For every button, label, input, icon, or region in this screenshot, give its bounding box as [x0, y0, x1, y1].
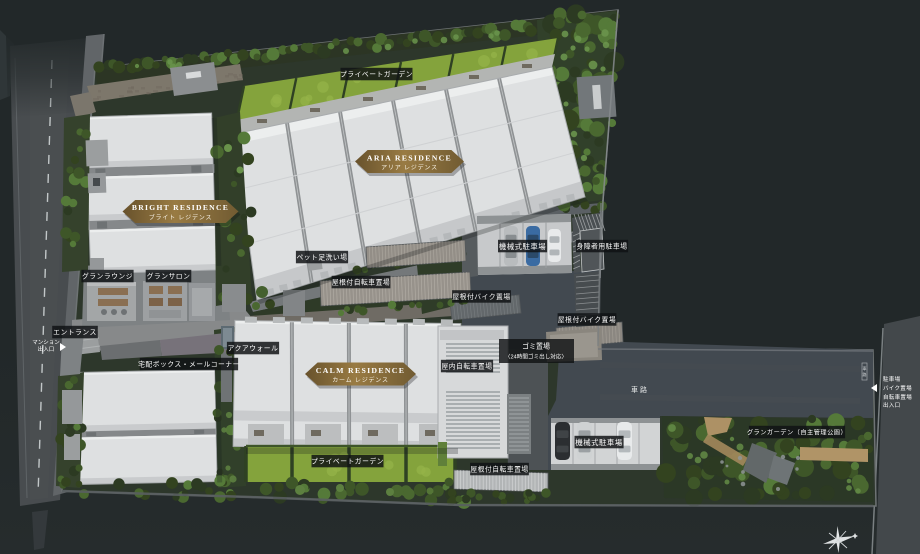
svg-text:CALM RESIDENCE: CALM RESIDENCE — [316, 366, 405, 375]
svg-text:プライベートガーデン: プライベートガーデン — [340, 70, 413, 79]
svg-text:路: 路 — [863, 371, 867, 377]
svg-text:車: 車 — [863, 365, 867, 371]
svg-text:ゴミ置場: ゴミ置場 — [522, 342, 550, 351]
svg-text:ペット足洗い場: ペット足洗い場 — [296, 253, 347, 262]
svg-text:グランサロン: グランサロン — [147, 272, 191, 281]
svg-text:自転車置場: 自転車置場 — [883, 393, 912, 401]
svg-text:出入口: 出入口 — [38, 345, 55, 353]
svg-text:屋根付バイク置場: 屋根付バイク置場 — [452, 292, 510, 301]
svg-text:屋根付バイク置場: 屋根付バイク置場 — [558, 315, 616, 324]
svg-text:グランガーデン（自主管理公園）: グランガーデン（自主管理公園） — [747, 428, 847, 436]
svg-text:グランラウンジ: グランラウンジ — [82, 272, 133, 281]
svg-text:ブライト レジデンス: ブライト レジデンス — [149, 214, 213, 222]
svg-text:BRIGHT RESIDENCE: BRIGHT RESIDENCE — [132, 203, 229, 212]
svg-text:身障者用駐車場: 身障者用駐車場 — [576, 242, 627, 251]
svg-text:エントランス: エントランス — [53, 329, 97, 337]
svg-text:ARIA RESIDENCE: ARIA RESIDENCE — [367, 153, 452, 162]
svg-text:駐車場: 駐車場 — [883, 375, 901, 383]
svg-text:屋根付自転車置場: 屋根付自転車置場 — [470, 465, 528, 474]
svg-text:〈24時間ゴミ出し対応〉: 〈24時間ゴミ出し対応〉 — [505, 353, 567, 361]
svg-text:屋内自転車置場: 屋内自転車置場 — [441, 362, 492, 371]
svg-text:マンション: マンション — [32, 339, 60, 346]
svg-text:車路: 車路 — [631, 385, 649, 394]
svg-text:バイク置場: バイク置場 — [883, 384, 912, 392]
svg-text:屋根付自転車置場: 屋根付自転車置場 — [332, 278, 390, 287]
svg-text:アクアウォール: アクアウォール — [228, 345, 279, 353]
svg-text:アリア レジデンス: アリア レジデンス — [381, 164, 438, 172]
svg-text:機械式駐車場: 機械式駐車場 — [575, 438, 622, 447]
svg-text:機械式駐車場: 機械式駐車場 — [499, 242, 546, 251]
svg-text:出入口: 出入口 — [883, 401, 900, 409]
svg-text:宅配ボックス・メールコーナー: 宅配ボックス・メールコーナー — [138, 360, 240, 369]
svg-text:プライベートガーデン: プライベートガーデン — [311, 457, 384, 466]
svg-text:カーム レジデンス: カーム レジデンス — [332, 376, 389, 384]
